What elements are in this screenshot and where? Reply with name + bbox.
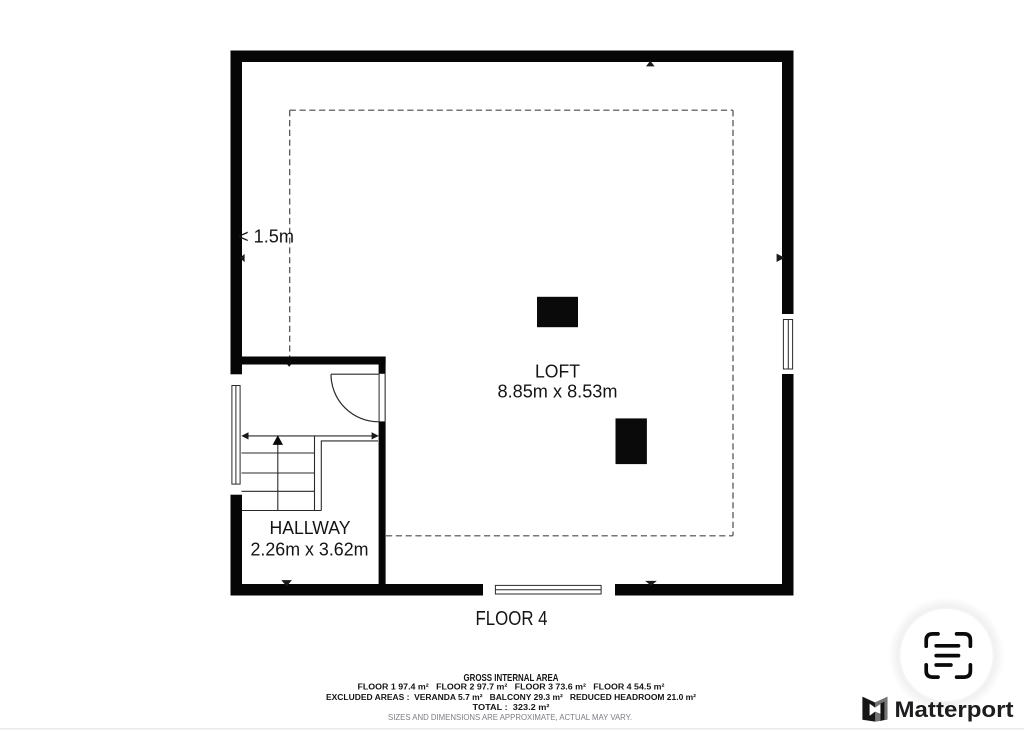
svg-text:TOTAL : 323.2 m²: TOTAL : 323.2 m² <box>473 703 550 712</box>
svg-text:EXCLUDED AREAS : VERANDA 5.7: EXCLUDED AREAS : VERANDA 5.7 m² BALCONY … <box>326 693 696 702</box>
svg-text:8.85m x 8.53m: 8.85m x 8.53m <box>498 380 618 401</box>
svg-text:HALLWAY: HALLWAY <box>270 517 351 538</box>
svg-text:SIZES AND DIMENSIONS ARE APPRO: SIZES AND DIMENSIONS ARE APPROXIMATE, AC… <box>388 712 632 722</box>
svg-text:LOFT: LOFT <box>535 360 580 381</box>
svg-text:FLOOR 4: FLOOR 4 <box>476 608 548 630</box>
svg-text:2.26m x 3.62m: 2.26m x 3.62m <box>251 539 369 560</box>
svg-text:< 1.5m: < 1.5m <box>238 225 294 246</box>
svg-text:FLOOR 1 97.4 m² FLOOR 2 97.7: FLOOR 1 97.4 m² FLOOR 2 97.7 m² FLOOR 3 … <box>358 682 665 691</box>
svg-text:Matterport: Matterport <box>895 697 1015 722</box>
